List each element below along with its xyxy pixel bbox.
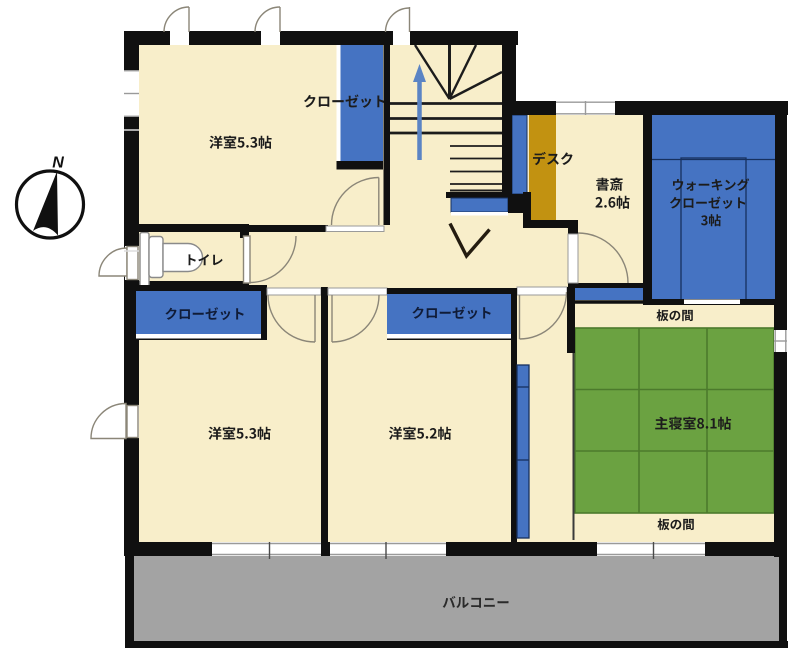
svg-text:N: N (52, 155, 64, 172)
